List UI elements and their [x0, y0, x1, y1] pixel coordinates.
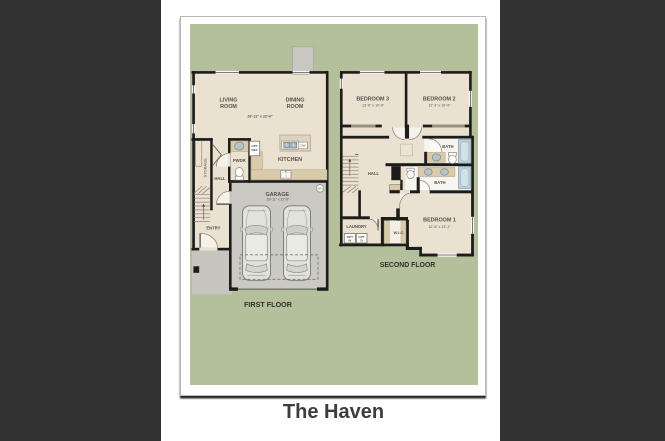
svg-text:HALL: HALL — [214, 176, 226, 181]
svg-text:26'-11" x 22'-6": 26'-11" x 22'-6" — [247, 115, 273, 119]
svg-text:W.I.C.: W.I.C. — [393, 230, 404, 235]
svg-text:BATH: BATH — [442, 144, 453, 149]
svg-text:STORAGE: STORAGE — [202, 158, 207, 178]
svg-text:FIRST FLOOR: FIRST FLOOR — [244, 300, 293, 309]
svg-text:DW: DW — [300, 144, 305, 148]
svg-text:LAUNDRY: LAUNDRY — [346, 224, 367, 229]
svg-text:REF: REF — [251, 148, 257, 152]
svg-text:SECOND FLOOR: SECOND FLOOR — [379, 262, 435, 269]
svg-text:ROOM: ROOM — [220, 104, 237, 110]
svg-text:WH: WH — [317, 187, 322, 191]
svg-text:ROOM: ROOM — [286, 104, 303, 110]
svg-text:W: W — [348, 239, 351, 243]
svg-text:12'-3" x 10'-9": 12'-3" x 10'-9" — [428, 104, 451, 108]
svg-text:DINING: DINING — [285, 98, 304, 104]
svg-text:BATH: BATH — [434, 180, 445, 185]
svg-text:ENTRY: ENTRY — [206, 226, 220, 231]
svg-text:BEDROOM 2: BEDROOM 2 — [422, 97, 455, 103]
svg-text:BEDROOM 3: BEDROOM 3 — [356, 97, 389, 103]
svg-text:13'-6" x 10'-9": 13'-6" x 10'-9" — [362, 104, 385, 108]
svg-text:12'-8" x 13'-1": 12'-8" x 13'-1" — [428, 225, 451, 229]
svg-text:LIVING: LIVING — [219, 98, 237, 104]
svg-text:19'-11" x 22'-6": 19'-11" x 22'-6" — [266, 198, 289, 202]
svg-text:BEDROOM 1: BEDROOM 1 — [423, 218, 456, 224]
svg-text:PWDR: PWDR — [232, 158, 245, 163]
svg-text:KITCHEN: KITCHEN — [278, 157, 302, 163]
svg-text:HALL: HALL — [367, 171, 379, 176]
